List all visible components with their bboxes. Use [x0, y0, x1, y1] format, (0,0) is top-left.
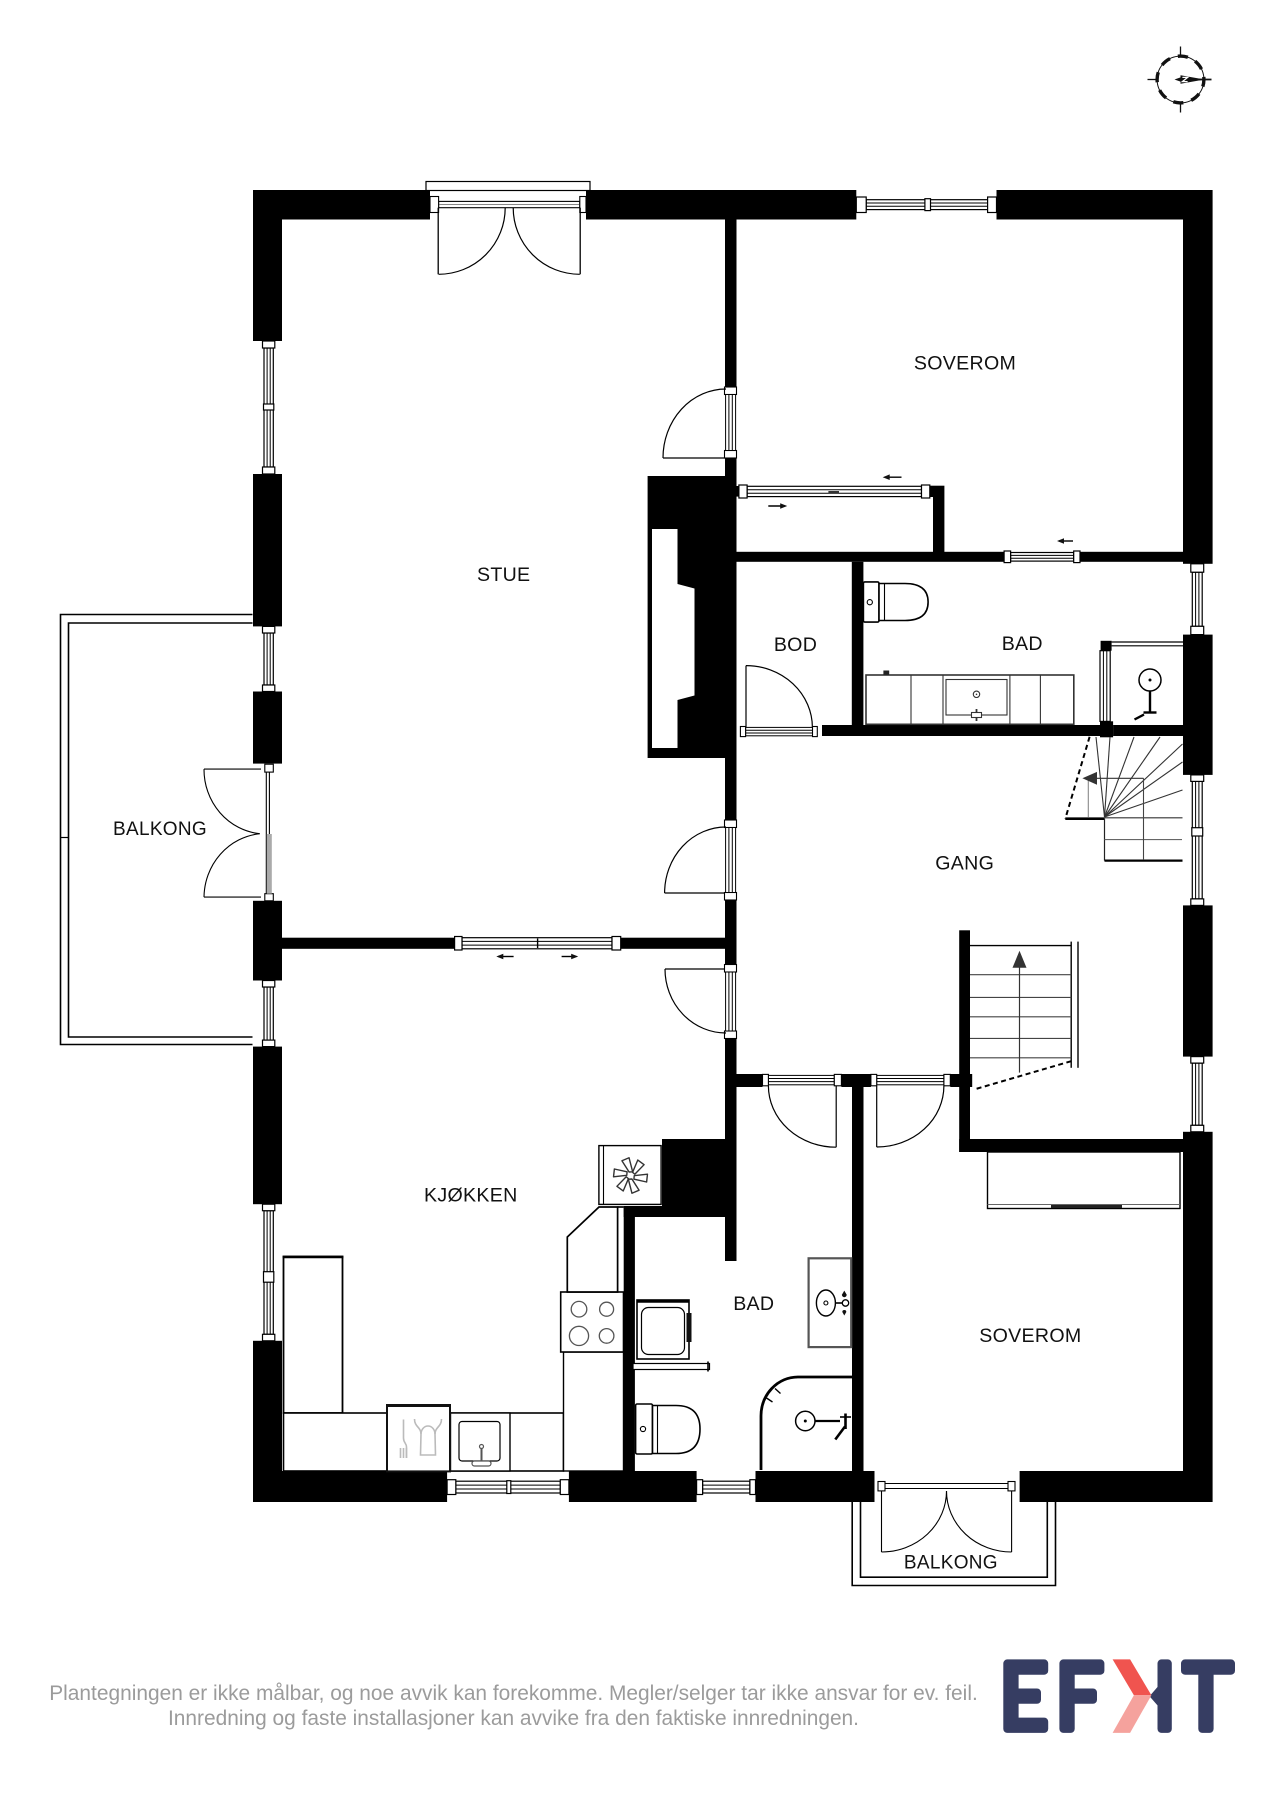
svg-text:SOVEROM: SOVEROM	[979, 1325, 1081, 1347]
svg-text:BALKONG: BALKONG	[904, 1553, 998, 1574]
svg-text:BALKONG: BALKONG	[113, 819, 207, 840]
svg-text:KJØKKEN: KJØKKEN	[424, 1185, 518, 1207]
svg-text:BOD: BOD	[774, 634, 817, 656]
svg-text:BAD: BAD	[1002, 633, 1043, 655]
svg-text:Innredning og faste installasj: Innredning og faste installasjoner kan a…	[168, 1707, 859, 1730]
svg-text:Plantegningen er ikke målbar,: Plantegningen er ikke målbar, og noe avv…	[49, 1682, 978, 1705]
svg-text:BAD: BAD	[733, 1293, 774, 1315]
svg-text:GANG: GANG	[935, 853, 994, 875]
svg-text:SOVEROM: SOVEROM	[914, 352, 1016, 374]
svg-text:STUE: STUE	[477, 564, 530, 586]
